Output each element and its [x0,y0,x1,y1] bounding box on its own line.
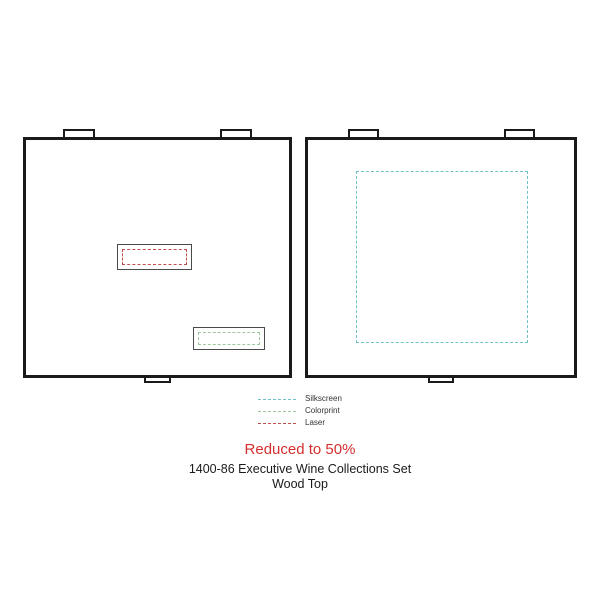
imprint-proof-canvas: Silkscreen Colorprint Laser Reduced to 5… [0,0,600,600]
legend-row-colorprint: Colorprint [258,405,342,417]
colorprint-dash-swatch [258,411,296,412]
colorprint-imprint-plate [193,327,265,350]
legend-row-silkscreen: Silkscreen [258,393,342,405]
silkscreen-legend-label: Silkscreen [305,393,342,405]
silkscreen-imprint-area [356,171,528,343]
laser-dash-swatch [258,423,296,424]
laser-imprint-plate [117,244,192,270]
colorprint-imprint-area [198,332,260,345]
imprint-method-legend: Silkscreen Colorprint Laser [258,393,342,429]
reduction-notice: Reduced to 50% [0,441,600,458]
colorprint-legend-label: Colorprint [305,405,340,417]
laser-legend-label: Laser [305,417,325,429]
laser-imprint-area [122,249,187,265]
product-subtitle: Wood Top [0,477,600,491]
silkscreen-dash-swatch [258,399,296,400]
legend-row-laser: Laser [258,417,342,429]
product-title: 1400-86 Executive Wine Collections Set [0,462,600,476]
